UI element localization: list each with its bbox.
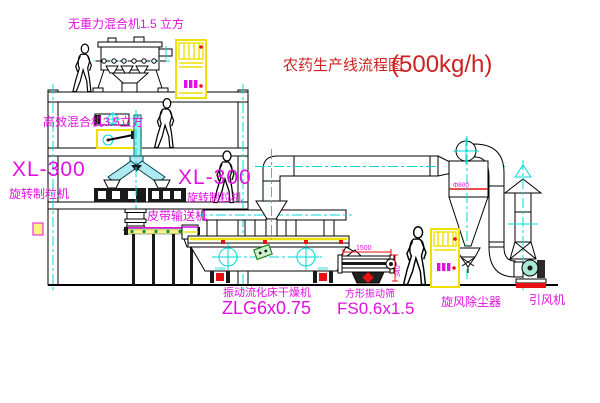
cyclone-cylinder — [449, 161, 488, 197]
roof-slab — [48, 92, 248, 102]
granulator-right-name: 旋转制粒机 — [187, 190, 242, 204]
indicator-light-icon — [199, 45, 203, 49]
control-cabinet-1 — [176, 40, 206, 98]
induced-draft-fan — [514, 260, 546, 288]
worker-figure-floor2 — [155, 99, 174, 148]
floor-mixer-label: 高效混合机3.5立方 — [43, 114, 144, 129]
granulator-right-model: XL-300 — [178, 166, 252, 189]
screen-model-label: FS0.6x1.5 — [337, 299, 415, 318]
panel-display-icon — [184, 80, 187, 88]
conveyor-leg — [132, 234, 135, 285]
worker-figure-roof — [73, 44, 91, 91]
second-floor-slab — [48, 148, 248, 156]
granulator-left-name: 旋转制粒机 — [9, 186, 69, 201]
control-cabinet-2 — [431, 229, 459, 287]
fan-label: 引风机 — [529, 293, 565, 307]
belt-conveyor-label: 皮带输送机 — [147, 208, 207, 223]
rotary-granulator-left — [94, 180, 146, 202]
diagram-title: 农药生产线流程图 — [283, 57, 403, 74]
cyclone-label: 旋风除尘器 — [441, 294, 501, 309]
dryer-name-label: 振动流化床干燥机 — [223, 285, 311, 299]
cyclone-diameter-dim: Φ800 — [453, 182, 469, 189]
cad-drawing-page: 无重力混合机1.5 立方 农药生产线流程图 (500kg/h) 高效混合机3.5… — [0, 0, 600, 403]
process-flow-diagram: 无重力混合机1.5 立方 农药生产线流程图 (500kg/h) 高效混合机3.5… — [0, 0, 600, 403]
worker-figure-ground — [404, 227, 426, 285]
mixer-discharge-chute — [122, 83, 137, 92]
screen-height-dim: 340 — [395, 265, 402, 277]
diagram-title-capacity: (500kg/h) — [391, 51, 492, 78]
panel-display-icon — [437, 263, 440, 271]
fan-base — [516, 283, 546, 288]
dryer-model-label: ZLG6x0.75 — [222, 298, 311, 318]
granulator-left-model: XL-300 — [12, 158, 86, 181]
indicator-light-icon — [453, 237, 457, 241]
screen-length-dim: 1500 — [356, 245, 372, 252]
gravity-free-mixer — [93, 37, 172, 92]
discharge-pipe — [124, 209, 147, 230]
roof-mixer-label: 无重力混合机1.5 立方 — [68, 16, 184, 31]
